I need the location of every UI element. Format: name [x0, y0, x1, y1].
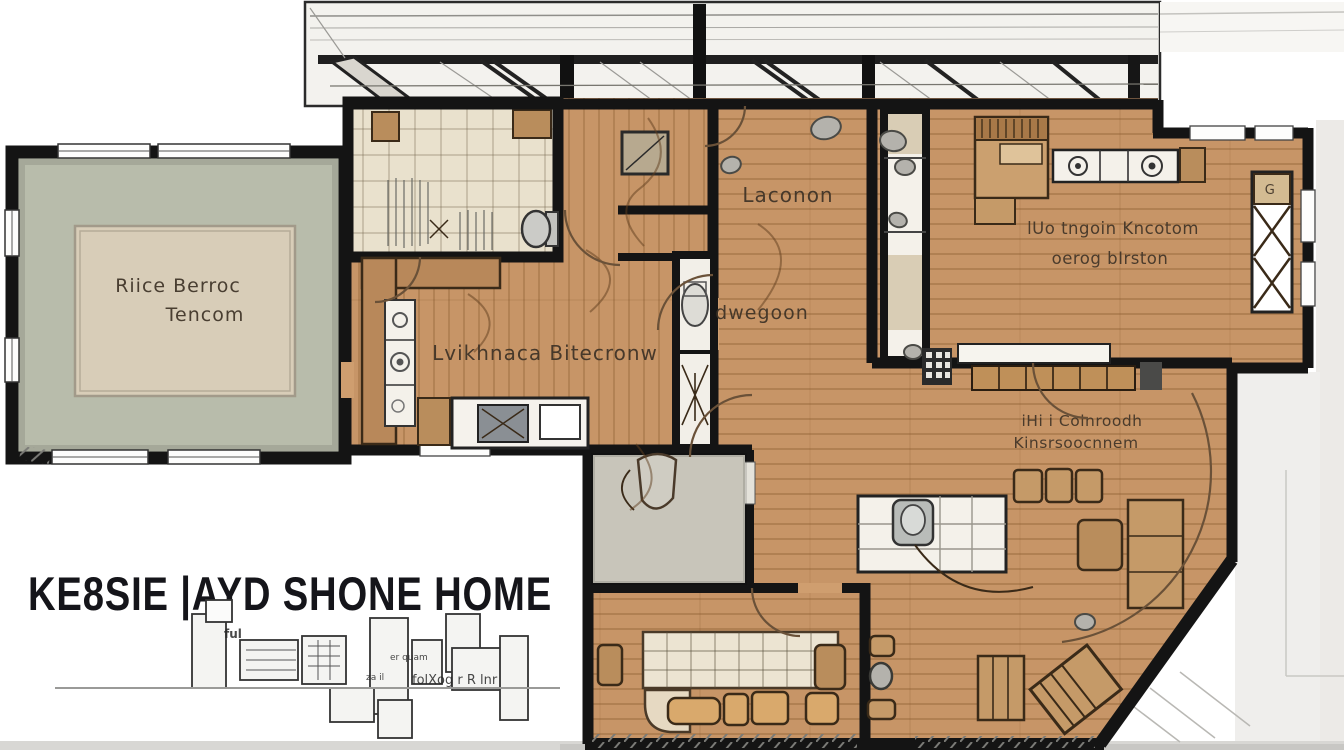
- bedroom-label-1: lUo tngoin Kncotom: [1027, 219, 1199, 238]
- floor-plan-canvas: Riice Berroc Tencom: [0, 0, 1344, 750]
- elevation-sketch: [192, 600, 528, 738]
- note-ful: ful: [224, 627, 242, 641]
- skylight-band: [305, 2, 1344, 112]
- note-zail: za il: [366, 673, 384, 683]
- dresser: [978, 656, 1024, 720]
- bathroom-shelf: [513, 110, 551, 138]
- stools: [868, 636, 895, 719]
- middle-room-label: dwegoon: [715, 302, 809, 324]
- bench-cushions: [1014, 469, 1102, 502]
- bathroom: [348, 102, 558, 257]
- floor-plan-sheet: Riice Berroc Tencom: [0, 0, 1344, 750]
- wardrobe: [1128, 500, 1183, 608]
- kitchenette-counter: [1053, 148, 1205, 182]
- title-block: KE8SIE |AYD SHONE HOME ful er quam za il…: [28, 567, 560, 738]
- long-table: [643, 632, 838, 688]
- note-folxog: folXog r R lnr: [412, 673, 498, 688]
- hall-label: Laconon: [742, 183, 833, 207]
- bathroom-cabinet: [372, 112, 399, 141]
- family-label-1: iHi i Colnroodh: [1021, 412, 1142, 430]
- x-shelf-unit: G: [1252, 172, 1292, 312]
- plan-title: KE8SIE |AYD SHONE HOME: [28, 567, 552, 620]
- armchair-small: [1078, 520, 1122, 570]
- kitchen-living-label: Lvikhnaca Bitecronw: [432, 341, 658, 365]
- storage-room-label-1: Riice Berroc: [115, 275, 241, 297]
- corner-chair: [815, 645, 845, 689]
- patio: [593, 454, 745, 583]
- seat-cushions: [668, 692, 838, 725]
- kitchen-cabinet: [418, 398, 450, 445]
- shelf-mark-label: G: [1265, 183, 1276, 198]
- side-bench: [598, 645, 622, 685]
- note-erquam: er quam: [390, 653, 428, 663]
- storage-room: Riice Berroc Tencom: [5, 144, 345, 464]
- family-label-2: Kinsrsoocnnem: [1013, 434, 1138, 452]
- bedroom-label-2: oerog bIrston: [1052, 249, 1169, 268]
- patio-chair: [638, 454, 676, 509]
- storage-room-label-2: Tencom: [165, 304, 245, 326]
- toilet: [522, 211, 558, 247]
